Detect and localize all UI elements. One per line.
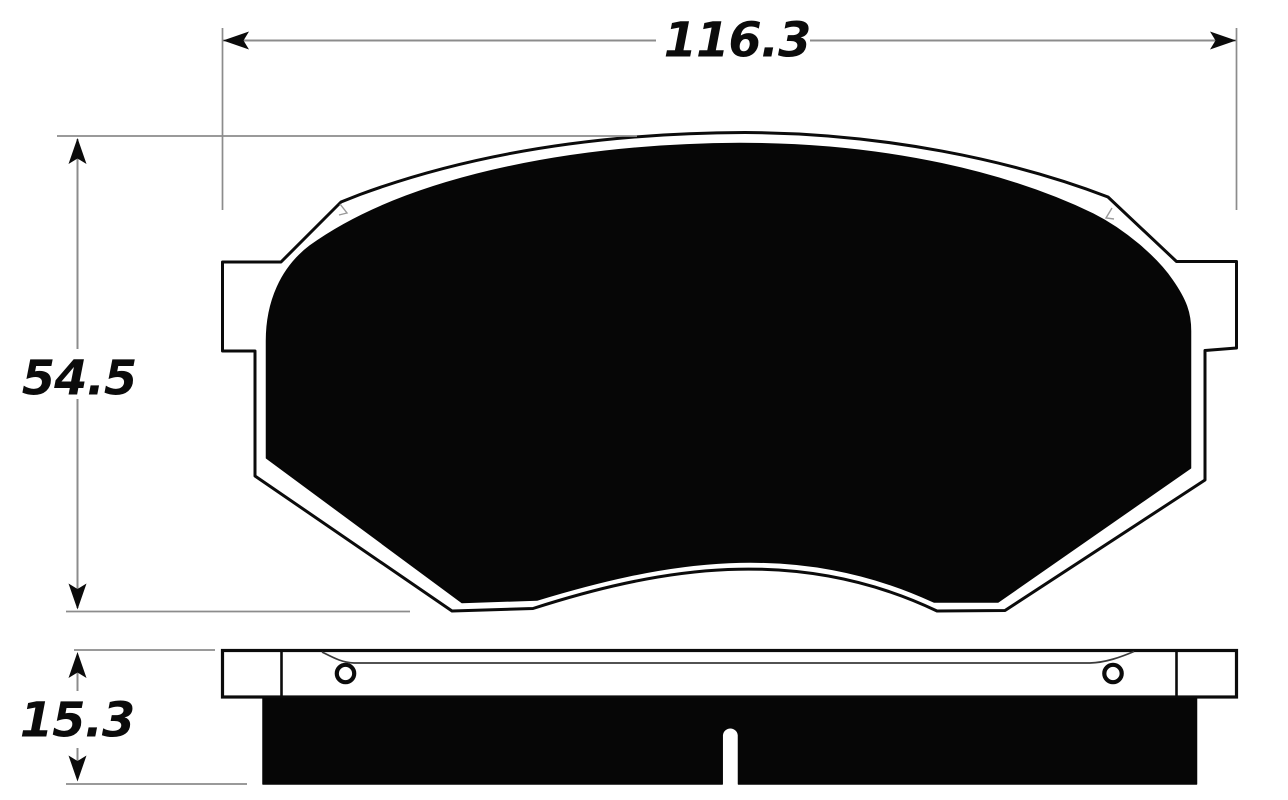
- rivet-hole-left: [337, 665, 354, 682]
- front-view: [223, 133, 1237, 612]
- brake-pad-technical-drawing: 116.3 54.5 15.3: [0, 0, 1288, 800]
- dimension-thickness: 15.3: [20, 650, 247, 784]
- side-view: [223, 651, 1237, 785]
- rivet-hole-right: [1104, 665, 1121, 682]
- brake-pad-drawing-canvas: 116.3 54.5 15.3: [0, 0, 1288, 800]
- height-dimension-label: 54.5: [22, 351, 136, 407]
- friction-material-side: [263, 699, 1197, 785]
- friction-material-front: [267, 144, 1191, 603]
- width-dimension-label: 116.3: [664, 13, 811, 69]
- backing-plate-side: [223, 651, 1237, 698]
- thickness-dimension-label: 15.3: [20, 693, 134, 749]
